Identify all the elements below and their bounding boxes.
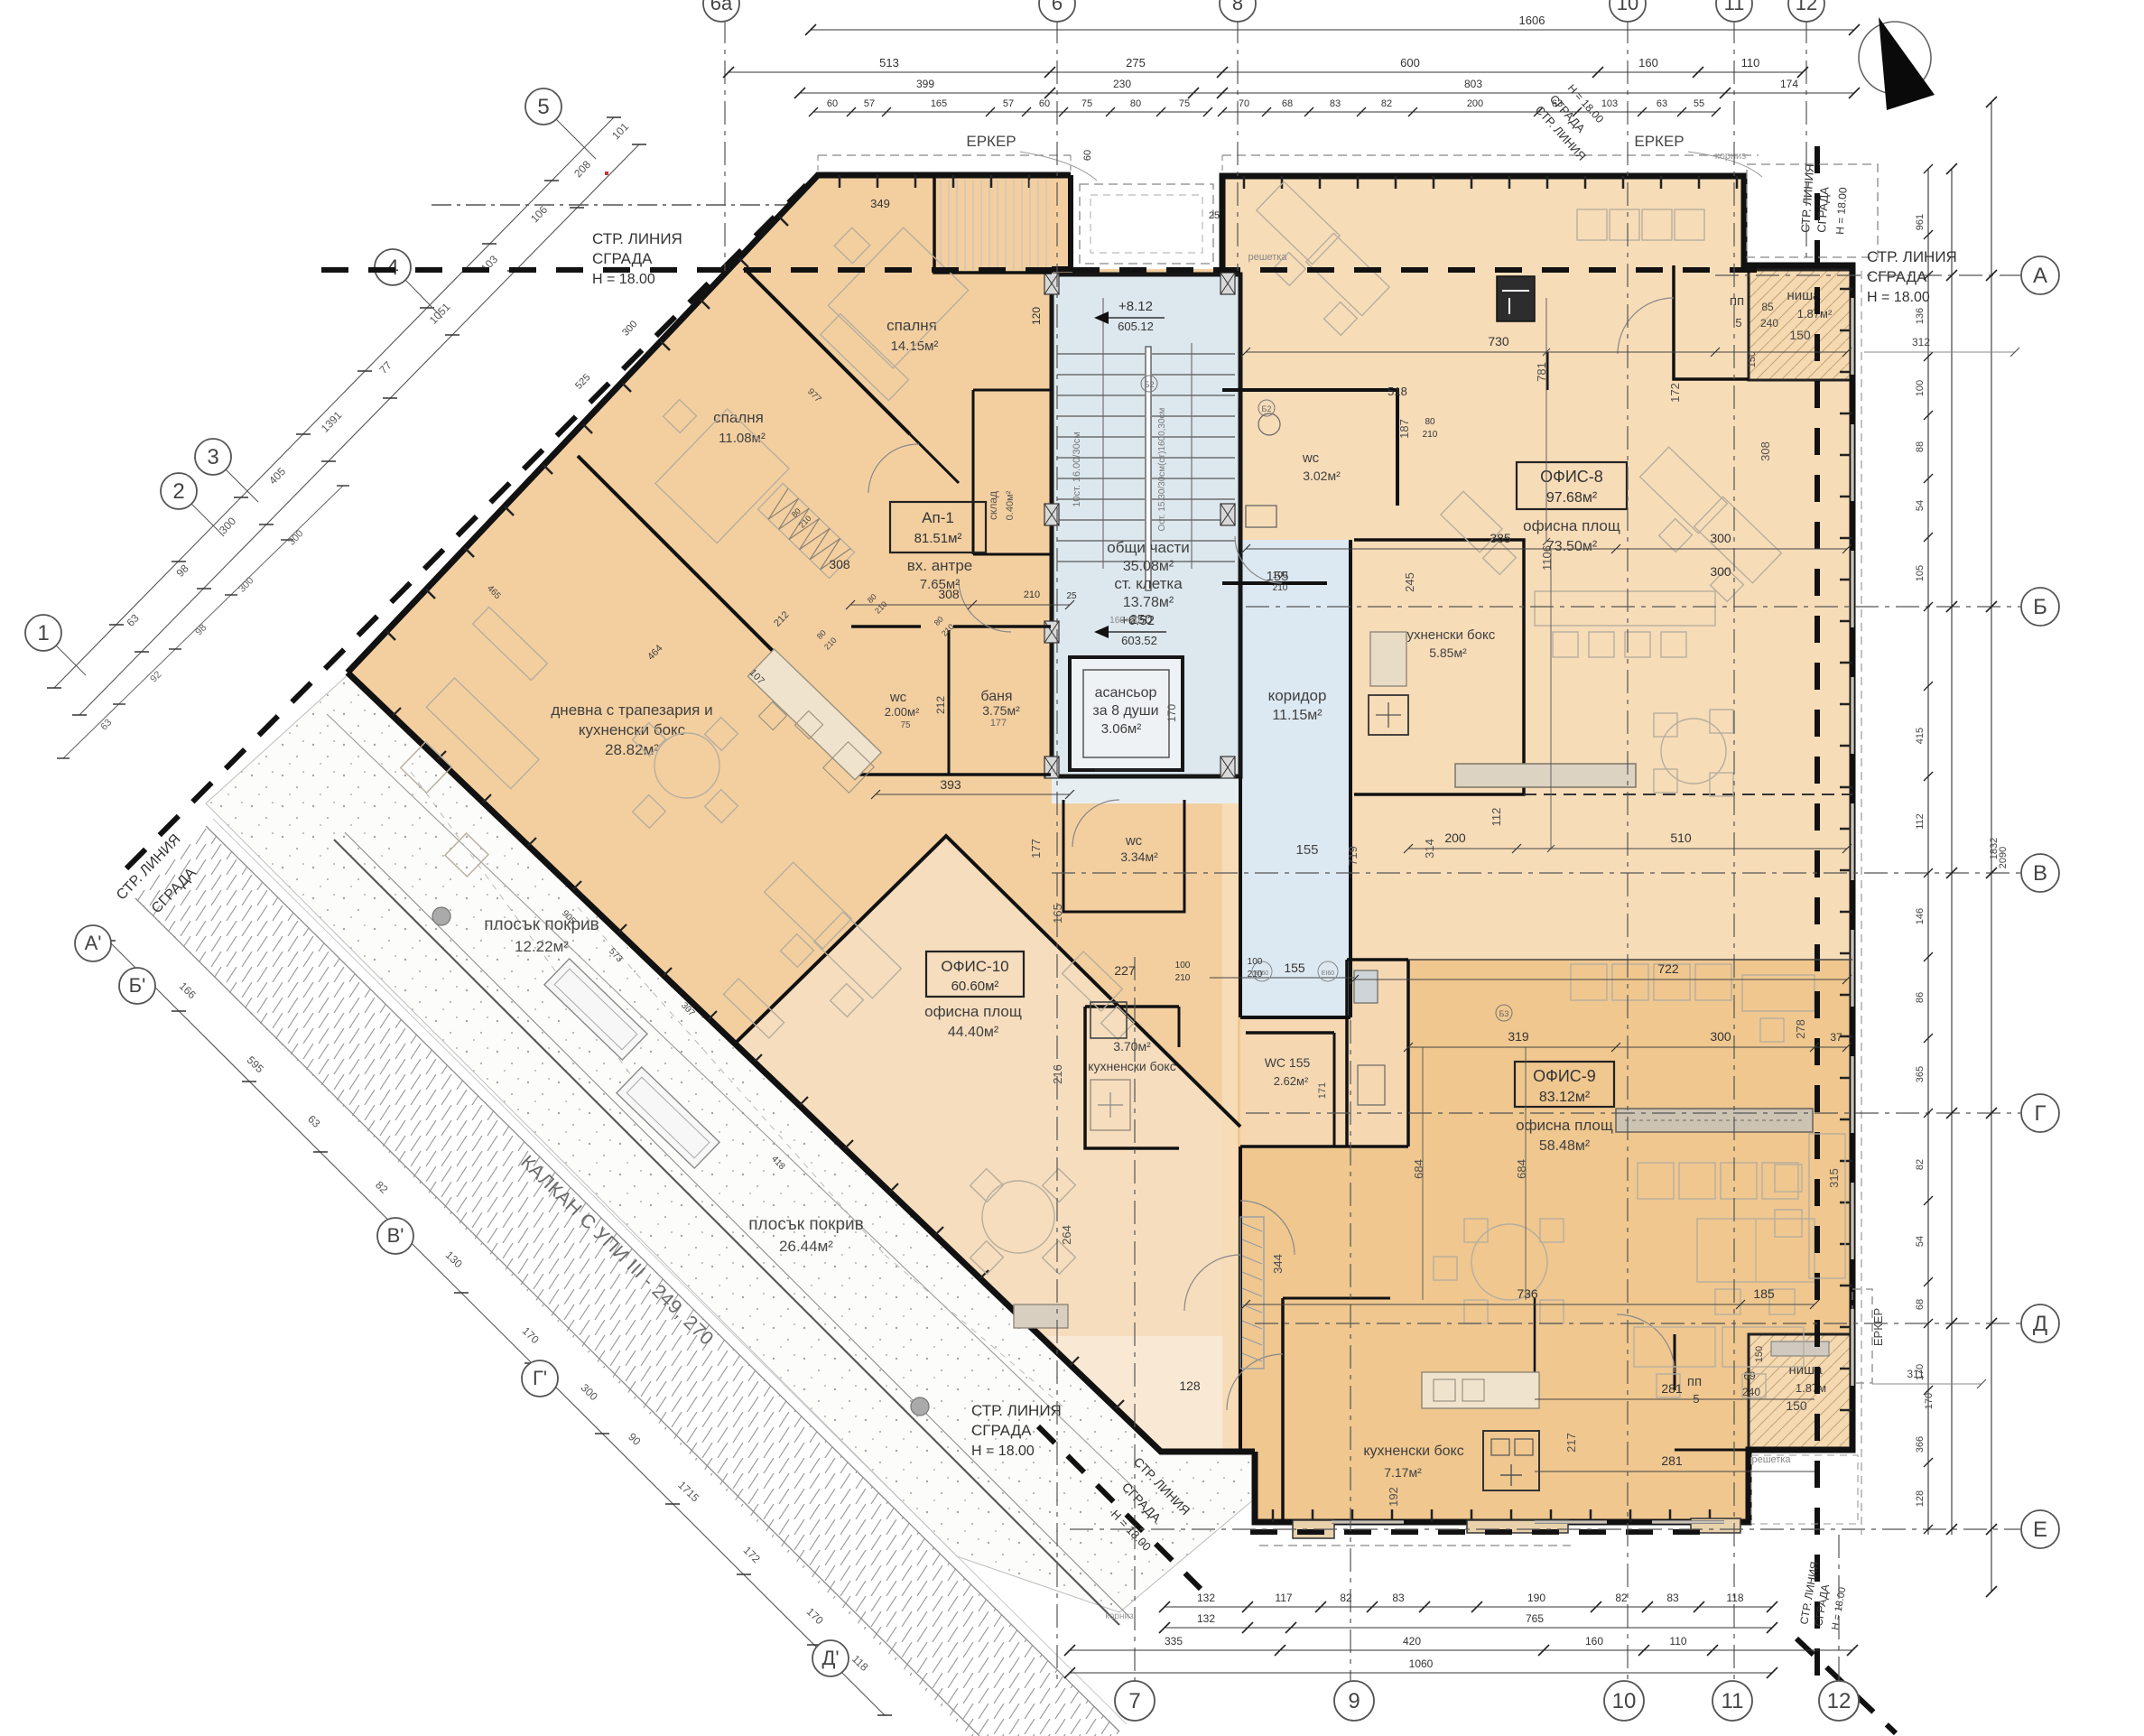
svg-text:44.40м²: 44.40м² [948,1025,999,1040]
svg-text:765: 765 [1526,1612,1544,1625]
svg-text:100: 100 [1273,571,1288,580]
svg-text:349: 349 [870,197,890,210]
svg-text:11: 11 [1724,0,1745,14]
svg-text:Б2: Б2 [1262,404,1272,413]
svg-text:57: 57 [1003,98,1014,109]
svg-text:2.62м²: 2.62м² [1274,1074,1309,1088]
svg-text:спалня: спалня [713,409,764,426]
svg-text:10: 10 [1612,1689,1637,1713]
svg-text:60: 60 [1039,98,1050,109]
svg-text:150: 150 [1789,328,1811,342]
svg-text:160: 160 [1638,56,1658,70]
svg-text:1: 1 [37,621,49,645]
svg-text:пп: пп [1687,1374,1702,1389]
svg-text:вх. антре: вх. антре [907,557,973,574]
svg-text:68: 68 [1282,98,1293,109]
svg-text:319: 319 [1508,1029,1529,1044]
svg-text:ОФИС-10: ОФИС-10 [941,958,1008,975]
svg-text:Д': Д' [821,1647,839,1669]
svg-text:13.78м²: 13.78м² [1123,595,1174,610]
svg-text:281: 281 [1661,1453,1683,1468]
svg-text:7.17м²: 7.17м² [1384,1465,1422,1480]
svg-text:722: 722 [1657,961,1679,976]
svg-text:240: 240 [1760,317,1778,330]
svg-text:365: 365 [1915,1066,1926,1082]
svg-text:ОФИС-8: ОФИС-8 [1540,468,1603,486]
svg-text:132: 132 [1197,1612,1215,1625]
svg-text:278: 278 [1794,1019,1807,1039]
svg-text:6: 6 [1052,0,1063,14]
svg-text:100: 100 [1915,380,1926,396]
svg-text:165: 165 [1051,904,1064,924]
svg-text:3.34м²: 3.34м² [1120,849,1158,864]
svg-text:1060: 1060 [1409,1657,1434,1670]
svg-text:170: 170 [1165,704,1178,722]
svg-text:63: 63 [1657,98,1667,109]
svg-text:82: 82 [1615,1592,1628,1604]
svg-text:12: 12 [1796,0,1817,14]
svg-text:Б3: Б3 [1499,1009,1509,1018]
svg-text:217: 217 [1564,1433,1578,1453]
svg-text:200: 200 [1467,98,1483,109]
svg-text:офисна площ: офисна площ [1523,517,1620,534]
svg-text:11.15м²: 11.15м² [1272,708,1323,723]
svg-text:55: 55 [1694,98,1704,109]
svg-text:518: 518 [1388,385,1407,398]
svg-text:ЕРКЕР: ЕРКЕР [1871,1308,1885,1346]
svg-text:308: 308 [829,557,850,571]
svg-text:ЕРКЕР: ЕРКЕР [1634,133,1684,150]
svg-text:165: 165 [931,98,947,109]
svg-text:10ст. 16.00/30см: 10ст. 16.00/30см [1072,432,1082,507]
svg-text:10: 10 [1617,0,1638,14]
svg-text:281: 281 [1661,1381,1683,1396]
svg-text:97.68м²: 97.68м² [1546,490,1598,506]
svg-text:Г: Г [2035,1101,2047,1126]
svg-text:83: 83 [1330,98,1341,109]
svg-text:961: 961 [1915,214,1926,230]
svg-text:СТР. ЛИНИЯ: СТР. ЛИНИЯ [1867,248,1957,265]
svg-text:за 8 души: за 8 души [1092,703,1158,719]
svg-text:СГРАДА: СГРАДА [592,250,653,267]
svg-text:128: 128 [1915,1490,1926,1507]
svg-text:57: 57 [864,98,875,109]
svg-text:170: 170 [1924,1393,1935,1409]
svg-text:100: 100 [1175,961,1191,970]
svg-text:88: 88 [1915,441,1926,452]
svg-text:83: 83 [1392,1592,1405,1604]
svg-text:171: 171 [1317,1082,1328,1099]
svg-text:300: 300 [1710,564,1731,579]
svg-text:73.50м²: 73.50м² [1546,539,1598,554]
svg-text:160: 160 [1585,1635,1603,1648]
svg-text:WC 155: WC 155 [1265,1055,1311,1070]
svg-text:кухненски бокс: кухненски бокс [1363,1444,1463,1459]
svg-text:кухненски бокс: кухненски бокс [1088,1059,1175,1073]
svg-text:192: 192 [1387,1487,1400,1507]
svg-text:600: 600 [1400,56,1420,70]
svg-text:190: 190 [1527,1592,1545,1604]
svg-text:603.52: 603.52 [1121,634,1157,647]
svg-text:174: 174 [1780,78,1798,90]
svg-text:210: 210 [1423,430,1438,440]
svg-text:128: 128 [1179,1379,1201,1393]
svg-text:7: 7 [1128,1689,1140,1713]
svg-text:80: 80 [1425,417,1435,427]
svg-text:wc: wc [1125,833,1143,849]
svg-text:5: 5 [1735,316,1741,330]
svg-text:399: 399 [916,78,934,90]
svg-text:150: 150 [1786,1398,1807,1413]
svg-text:плосък покрив: плосък покрив [484,915,599,934]
svg-text:70: 70 [1239,98,1249,109]
svg-text:СТР. ЛИНИЯ: СТР. ЛИНИЯ [592,230,682,247]
svg-text:212: 212 [934,696,947,714]
svg-text:2090: 2090 [1998,847,2009,868]
svg-text:11: 11 [1722,1689,1744,1713]
svg-text:А: А [2033,264,2047,288]
svg-text:112: 112 [1915,813,1926,830]
svg-text:315: 315 [1827,1168,1841,1188]
svg-text:300: 300 [1710,531,1731,545]
svg-text:344: 344 [1271,1254,1285,1274]
svg-text:110: 110 [1669,1635,1686,1648]
svg-text:308: 308 [1759,441,1772,461]
svg-text:общи части: общи части [1107,539,1190,556]
svg-text:803: 803 [1464,78,1482,90]
svg-text:25: 25 [1066,591,1077,601]
svg-text:СГРАДА: СГРАДА [1867,268,1927,285]
svg-text:6а: 6а [710,0,733,14]
svg-text:12.22м²: 12.22м² [515,938,569,955]
svg-text:105: 105 [1915,565,1926,581]
svg-text:37: 37 [1830,1031,1842,1044]
svg-text:150: 150 [1747,351,1758,367]
svg-text:185: 185 [1753,1286,1775,1301]
svg-text:86: 86 [1915,992,1926,1003]
svg-text:177: 177 [1029,839,1043,859]
svg-text:асансьор: асансьор [1095,685,1157,701]
svg-text:100: 100 [1248,957,1263,967]
svg-text:офисна площ: офисна площ [924,1003,1022,1020]
svg-text:230: 230 [1113,78,1131,90]
svg-text:25: 25 [1209,210,1220,221]
svg-text:240: 240 [1742,1386,1760,1398]
svg-text:корниз: корниз [1105,1611,1134,1621]
svg-text:80: 80 [1130,98,1141,109]
svg-text:Н = 18.00: Н = 18.00 [971,1444,1035,1459]
svg-text:112: 112 [1490,808,1503,827]
svg-text:5: 5 [537,95,549,119]
svg-text:415: 415 [1915,728,1926,744]
svg-text:75: 75 [1179,98,1190,109]
svg-text:736: 736 [1517,1286,1538,1301]
svg-text:155: 155 [1295,842,1318,858]
svg-text:12: 12 [1827,1689,1852,1713]
svg-text:1106: 1106 [1540,545,1554,571]
svg-text:ОФИС-9: ОФИС-9 [1533,1067,1596,1085]
svg-text:187: 187 [1397,419,1411,439]
svg-text:В': В' [387,1224,404,1247]
svg-text:719: 719 [1346,846,1360,866]
svg-text:210: 210 [1273,583,1288,593]
svg-text:510: 510 [1670,831,1692,845]
svg-text:Ост. 15.30/30см(ст)1600,30см: Ост. 15.30/30см(ст)1600,30см [1157,407,1167,531]
svg-text:решетка: решетка [1248,252,1287,263]
svg-text:28.82м²: 28.82м² [605,741,659,758]
svg-text:8: 8 [1232,0,1243,14]
svg-text:132: 132 [1197,1592,1215,1604]
svg-text:117: 117 [1275,1592,1292,1604]
svg-text:730: 730 [1488,334,1509,348]
svg-text:83: 83 [1666,1592,1679,1604]
svg-text:63: 63 [1552,98,1563,109]
svg-text:Н = 18.00: Н = 18.00 [592,272,655,287]
svg-text:513: 513 [879,56,899,70]
svg-text:393: 393 [940,777,961,792]
svg-text:110: 110 [1741,56,1760,70]
svg-text:155: 155 [1284,961,1305,975]
svg-text:82: 82 [1915,1159,1926,1170]
svg-text:366: 366 [1915,1436,1926,1453]
svg-text:ст. клетка: ст. клетка [1114,575,1183,592]
svg-text:0.40м²: 0.40м² [1005,490,1016,520]
svg-text:дневна с трапезария и: дневна с трапезария и [551,701,712,719]
svg-text:СГРАДА: СГРАДА [971,1422,1032,1439]
svg-text:35.08м²: 35.08м² [1123,559,1174,574]
svg-text:385: 385 [1490,531,1511,545]
svg-text:69: 69 [1743,1369,1756,1382]
svg-text:1606: 1606 [1519,14,1545,27]
svg-text:26.44м²: 26.44м² [779,1238,833,1255]
svg-text:кухненски бокс: кухненски бокс [579,721,686,738]
svg-text:245: 245 [1403,572,1416,592]
svg-text:210: 210 [1024,589,1040,600]
svg-text:177: 177 [990,718,1007,729]
svg-text:9: 9 [1348,1689,1360,1713]
svg-text:корниз: корниз [1715,151,1746,162]
svg-text:308: 308 [938,587,960,601]
svg-text:82: 82 [1381,98,1392,109]
svg-text:335: 335 [1165,1635,1183,1648]
svg-text:кухненски бокс: кухненски бокс [1401,627,1496,643]
svg-text:Б: Б [2033,595,2047,619]
svg-text:1.87м: 1.87м [1796,1381,1826,1395]
svg-text:82: 82 [1340,1592,1352,1604]
svg-text:216: 216 [1051,1064,1064,1084]
svg-text:плосък покрив: плосък покрив [748,1215,864,1234]
svg-text:2: 2 [172,479,184,504]
svg-text:275: 275 [1126,56,1146,70]
svg-text:172: 172 [1668,383,1682,403]
svg-text:150: 150 [1754,1346,1765,1362]
svg-text:Г': Г' [533,1367,547,1389]
svg-text:210: 210 [1248,970,1263,979]
svg-text:А': А' [85,932,102,954]
svg-text:3: 3 [207,445,218,469]
svg-text:Б2: Б2 [1145,380,1155,389]
svg-text:160+40: 160+40 [1109,616,1140,626]
svg-text:83.12м²: 83.12м² [1539,1090,1591,1105]
svg-text:120: 120 [1030,307,1043,325]
svg-text:54: 54 [1915,1236,1926,1247]
svg-text:ЕРКЕР: ЕРКЕР [966,133,1016,150]
svg-text:58.48м²: 58.48м² [1539,1138,1591,1154]
svg-text:605.12: 605.12 [1118,320,1154,333]
svg-text:wc: wc [889,690,907,705]
svg-text:5.85м²: 5.85м² [1429,645,1467,660]
svg-text:264: 264 [1060,1225,1073,1245]
svg-text:Д: Д [2033,1312,2047,1336]
svg-text:склад: склад [987,491,999,520]
svg-text:300: 300 [1710,1029,1731,1044]
svg-text:420: 420 [1403,1635,1421,1648]
svg-text:коридор: коридор [1268,687,1327,704]
svg-text:54: 54 [1915,500,1926,511]
svg-text:227: 227 [1114,963,1136,978]
svg-text:3.75м²: 3.75м² [982,703,1020,718]
svg-text:2.00м²: 2.00м² [885,705,920,719]
svg-text:68: 68 [1915,1299,1926,1310]
svg-text:60.60м²: 60.60м² [951,979,999,994]
svg-text:3.06м²: 3.06м² [1101,721,1142,737]
svg-text:баня: баня [980,689,1012,704]
svg-text:В: В [2033,861,2047,886]
svg-text:210: 210 [1175,973,1191,983]
svg-text:пп: пп [1730,293,1744,309]
svg-text:85: 85 [1761,301,1774,313]
svg-text:+8.12: +8.12 [1118,299,1153,314]
svg-text:200: 200 [1444,831,1466,845]
svg-text:wc: wc [1302,450,1320,466]
svg-text:118: 118 [1726,1592,1743,1604]
svg-text:103: 103 [1601,98,1618,109]
svg-text:60: 60 [827,98,838,109]
svg-text:EI60: EI60 [1322,970,1335,977]
svg-text:684: 684 [1412,1159,1425,1179]
svg-text:Б': Б' [129,974,146,997]
svg-text:Ап-1: Ап-1 [922,509,954,526]
svg-text:3.02м²: 3.02м² [1303,469,1341,483]
svg-text:Н = 18.00: Н = 18.00 [1867,290,1930,305]
svg-text:75: 75 [1081,98,1092,109]
svg-text:СТР. ЛИНИЯ: СТР. ЛИНИЯ [971,1402,1062,1419]
svg-text:60: 60 [1082,150,1093,161]
svg-text:312: 312 [1912,336,1930,348]
svg-text:136: 136 [1915,308,1926,324]
svg-text:3.70м²: 3.70м² [1113,1039,1151,1054]
svg-text:146: 146 [1915,908,1926,924]
svg-text:75: 75 [900,720,911,730]
svg-text:Е: Е [2033,1518,2047,1542]
svg-text:684: 684 [1515,1159,1528,1179]
svg-text:81.51м²: 81.51м² [914,531,962,546]
svg-text:решетка: решетка [1751,1454,1791,1465]
svg-text:311: 311 [1907,1368,1924,1380]
svg-text:офисна площ: офисна площ [1516,1117,1613,1134]
svg-text:314: 314 [1423,839,1436,859]
